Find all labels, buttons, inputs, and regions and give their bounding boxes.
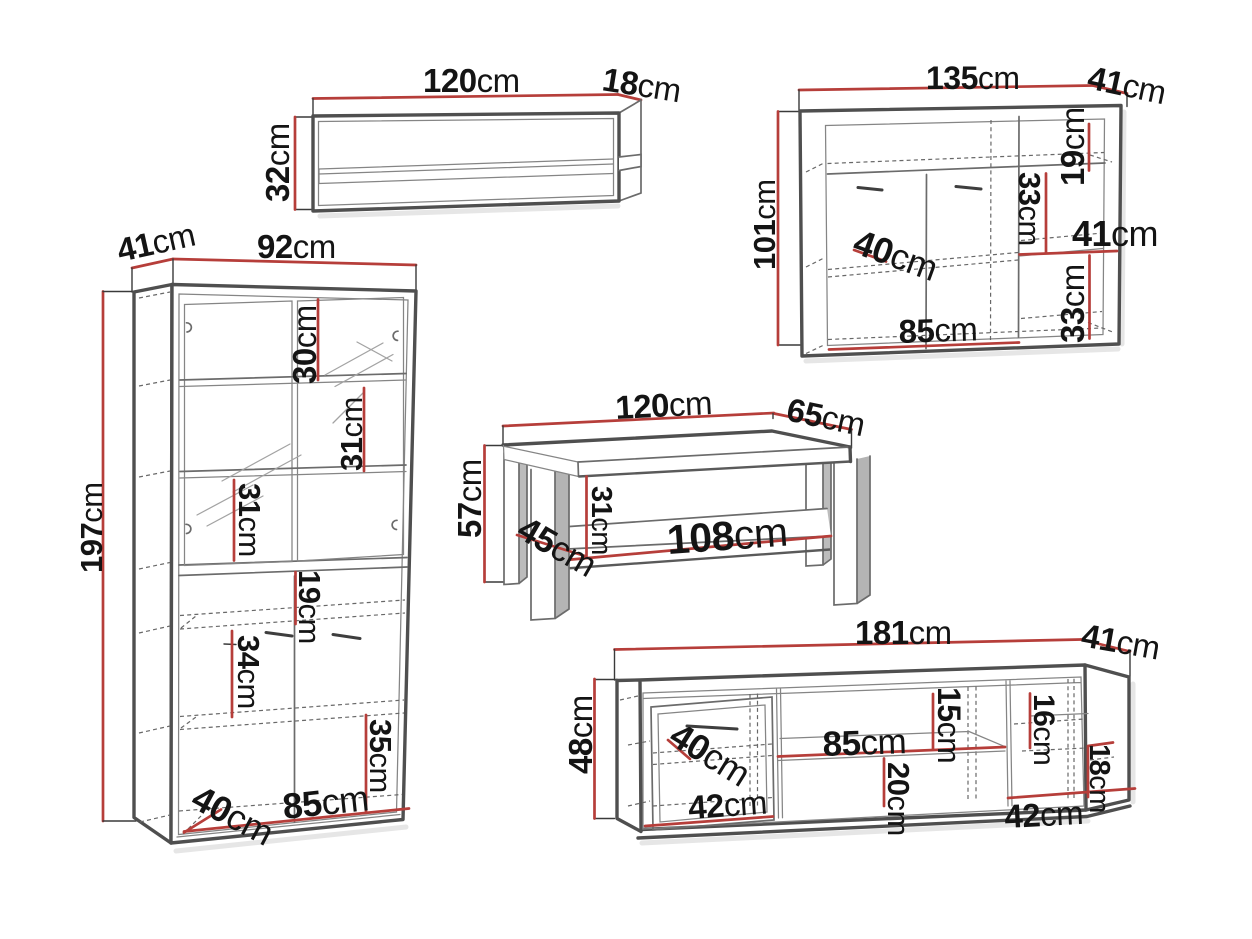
- svg-text:31cm: 31cm: [232, 483, 267, 557]
- svg-text:41cm: 41cm: [1072, 213, 1158, 254]
- svg-text:19cm: 19cm: [292, 570, 327, 644]
- svg-text:35cm: 35cm: [363, 719, 398, 793]
- svg-text:16cm: 16cm: [1027, 694, 1060, 765]
- svg-text:20cm: 20cm: [881, 762, 916, 836]
- svg-text:197cm: 197cm: [74, 482, 109, 573]
- svg-text:33cm: 33cm: [1012, 172, 1047, 246]
- svg-text:31cm: 31cm: [334, 397, 369, 471]
- svg-text:108cm: 108cm: [665, 509, 788, 563]
- svg-text:33cm: 33cm: [1054, 264, 1091, 343]
- svg-text:15cm: 15cm: [931, 687, 967, 763]
- svg-text:57cm: 57cm: [451, 459, 488, 538]
- svg-text:48cm: 48cm: [562, 695, 599, 774]
- svg-text:42cm: 42cm: [1003, 794, 1084, 835]
- svg-text:85cm: 85cm: [898, 310, 978, 350]
- svg-text:42cm: 42cm: [687, 784, 768, 826]
- svg-text:181cm: 181cm: [855, 614, 952, 651]
- svg-text:120cm: 120cm: [614, 384, 712, 426]
- svg-text:34cm: 34cm: [231, 635, 266, 709]
- svg-text:120cm: 120cm: [423, 62, 520, 99]
- svg-text:101cm: 101cm: [747, 179, 782, 270]
- svg-text:19cm: 19cm: [1054, 107, 1091, 186]
- svg-text:31cm: 31cm: [585, 486, 617, 555]
- svg-text:18cm: 18cm: [1083, 744, 1115, 813]
- svg-text:85cm: 85cm: [822, 722, 907, 764]
- svg-text:135cm: 135cm: [926, 60, 1020, 96]
- svg-text:30cm: 30cm: [286, 305, 323, 384]
- svg-text:92cm: 92cm: [257, 228, 336, 265]
- svg-text:32cm: 32cm: [259, 123, 296, 202]
